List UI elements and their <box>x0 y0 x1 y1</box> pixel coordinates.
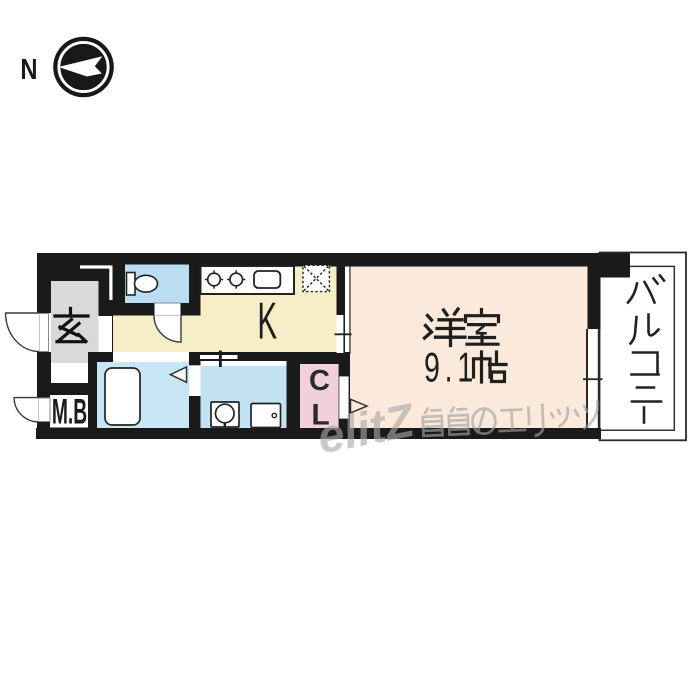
svg-text:N: N <box>20 53 37 86</box>
svg-text:K: K <box>257 292 277 350</box>
svg-text:9.1: 9.1 <box>424 343 478 391</box>
svg-text:C: C <box>309 365 330 397</box>
svg-text:M.B: M.B <box>52 391 87 431</box>
